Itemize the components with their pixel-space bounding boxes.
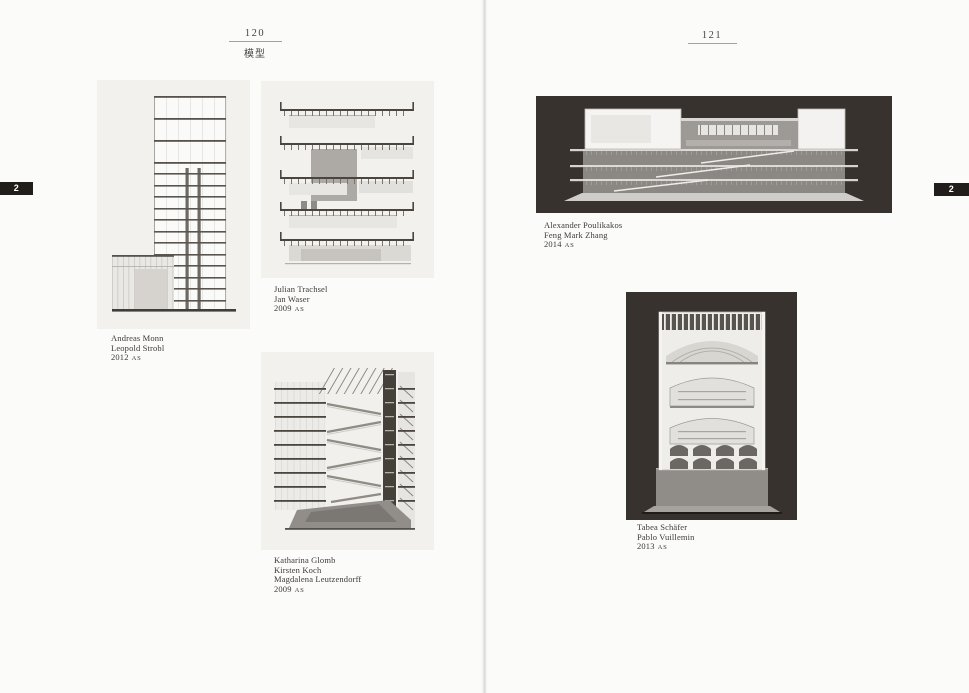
right-page-number: 121	[657, 30, 767, 41]
section-model-illustration	[536, 96, 892, 213]
slab-model-illustration	[261, 81, 434, 278]
page-gutter	[482, 0, 487, 693]
right-edge-tab: 2	[934, 183, 969, 196]
caption-year-line: 2012AS	[111, 353, 164, 364]
vault-model-illustration	[626, 292, 797, 520]
figure-caption: Andreas Monn Leopold Strobl 2012AS	[111, 334, 164, 364]
tower-model-illustration	[97, 80, 250, 329]
caption-year-line: 2009AS	[274, 304, 328, 315]
right-page-header: 121	[657, 30, 767, 47]
model-photo-panel	[261, 81, 434, 278]
figure-caption: Alexander Poulikakos Feng Mark Zhang 201…	[544, 221, 622, 251]
header-rule	[688, 43, 737, 44]
figure-caption: Katharina Glomb Kirsten Koch Magdalena L…	[274, 556, 361, 595]
model-photo-panel	[626, 292, 797, 520]
model-photo-panel	[261, 352, 434, 550]
header-rule	[229, 41, 282, 42]
left-page-number: 120	[200, 28, 310, 39]
figure-section-model	[536, 96, 892, 213]
caption-year-line: 2014AS	[544, 240, 622, 251]
caption-year-line: 2013AS	[637, 542, 695, 553]
figure-caption: Julian Trachsel Jan Waser 2009AS	[274, 285, 328, 315]
caption-year-line: 2009AS	[274, 585, 361, 596]
figure-tower-model	[97, 80, 250, 329]
model-photo-panel	[536, 96, 892, 213]
figure-ramp-model	[261, 352, 434, 550]
left-edge-tab: 2	[0, 182, 33, 195]
figure-vault-model	[626, 292, 797, 520]
model-photo-panel	[97, 80, 250, 329]
left-page-header: 120 模型	[200, 28, 310, 60]
figure-slab-model	[261, 81, 434, 278]
figure-caption: Tabea Schäfer Pablo Vuillemin 2013AS	[637, 523, 695, 553]
section-title: 模型	[200, 45, 310, 60]
ramp-model-illustration	[261, 352, 434, 550]
